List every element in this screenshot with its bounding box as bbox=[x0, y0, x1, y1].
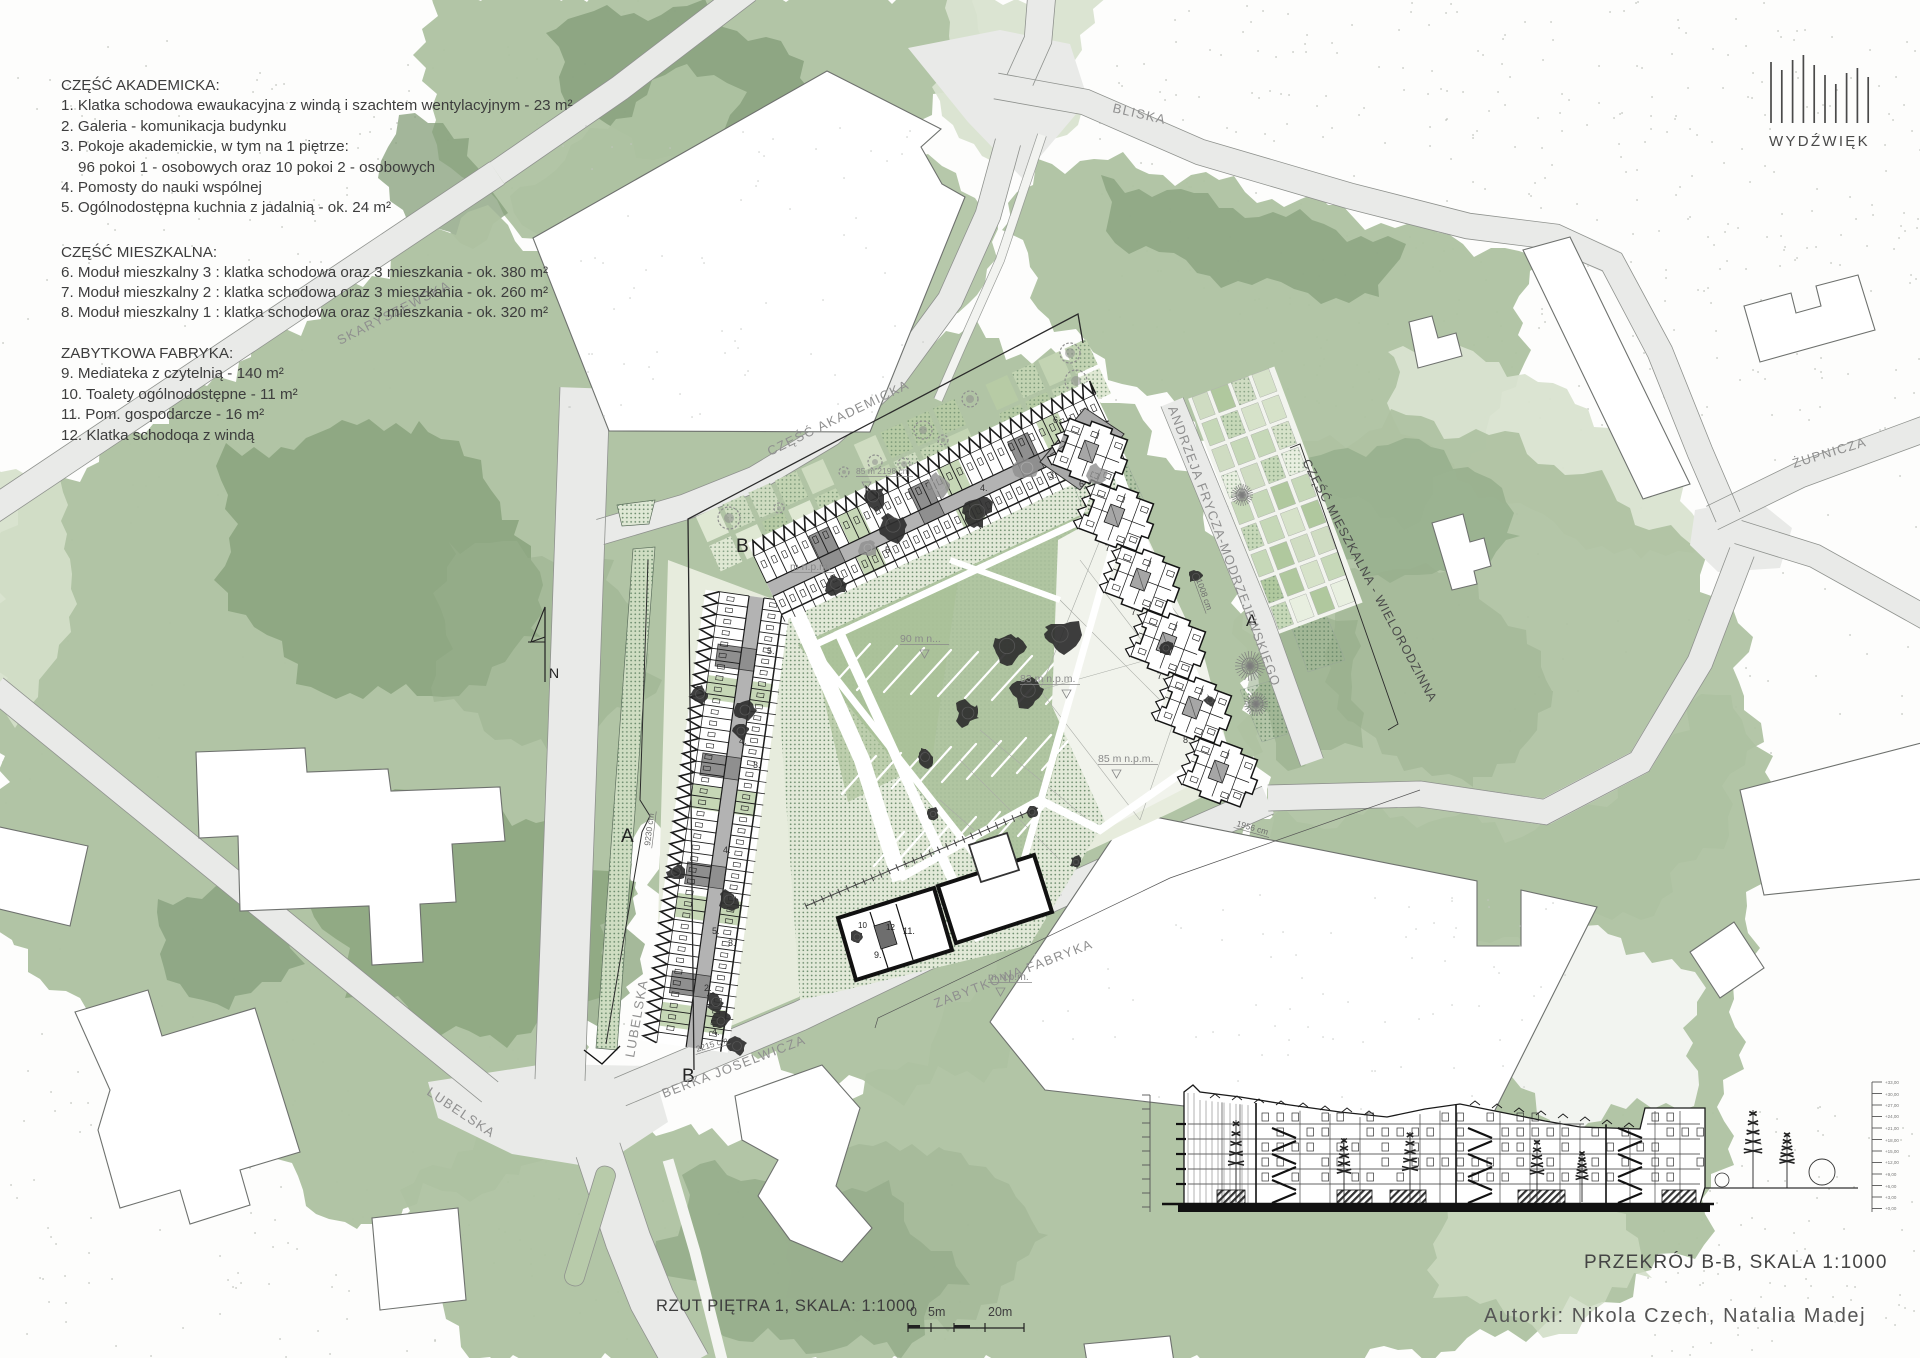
svg-text:3. Pokoje akademickie, w tym n: 3. Pokoje akademickie, w tym na 1 piętrz… bbox=[61, 138, 349, 155]
svg-text:4. Pomosty do nauki wspólnej: 4. Pomosty do nauki wspólnej bbox=[61, 179, 262, 196]
svg-text:11. Pom. gospodarcze - 16 m²: 11. Pom. gospodarcze - 16 m² bbox=[61, 406, 264, 423]
svg-text:+33,00: +33,00 bbox=[1885, 1080, 1899, 1085]
svg-text:7.: 7. bbox=[1131, 607, 1139, 617]
svg-text:B: B bbox=[736, 536, 749, 557]
svg-text:Autorki: Nikola Czech, Natalia: Autorki: Nikola Czech, Natalia Madej bbox=[1484, 1305, 1866, 1327]
svg-text:CZĘŚĆ MIESZKALNA:: CZĘŚĆ MIESZKALNA: bbox=[61, 243, 217, 261]
svg-text:11.: 11. bbox=[903, 926, 915, 936]
svg-text:+15,00: +15,00 bbox=[1885, 1149, 1899, 1154]
svg-text:83 m n.p.m.: 83 m n.p.m. bbox=[1020, 673, 1075, 685]
svg-text:+21,00: +21,00 bbox=[1885, 1126, 1899, 1131]
svg-text:N: N bbox=[549, 665, 559, 681]
svg-text:RZUT PIĘTRA 1, SKALA: 1:1000: RZUT PIĘTRA 1, SKALA: 1:1000 bbox=[656, 1297, 916, 1315]
svg-text:4.: 4. bbox=[712, 1027, 720, 1037]
svg-text:7.: 7. bbox=[1105, 543, 1113, 553]
svg-text:4.: 4. bbox=[723, 845, 731, 855]
svg-text:1. Klatka schodowa ewaukacyjna: 1. Klatka schodowa ewaukacyjna z windą i… bbox=[61, 97, 573, 114]
svg-text:10. Toalety ogólnodostępne - 1: 10. Toalety ogólnodostępne - 11 m² bbox=[61, 386, 298, 403]
svg-text:5.: 5. bbox=[885, 545, 893, 555]
svg-text:ZABYTKOWA FABRYKA:: ZABYTKOWA FABRYKA: bbox=[61, 345, 233, 362]
svg-text:2.: 2. bbox=[704, 983, 712, 993]
svg-text:0: 0 bbox=[910, 1305, 917, 1319]
svg-text:+12,00: +12,00 bbox=[1885, 1160, 1899, 1165]
svg-text:+0,00: +0,00 bbox=[1885, 1206, 1897, 1211]
svg-text:6.: 6. bbox=[1079, 479, 1087, 489]
svg-text:5. Ogólnodostępna kuchnia z ja: 5. Ogólnodostępna kuchnia z jadalnią - o… bbox=[61, 199, 391, 216]
svg-text:5m: 5m bbox=[928, 1305, 945, 1319]
svg-text:3.: 3. bbox=[728, 938, 736, 948]
svg-text:5.: 5. bbox=[712, 926, 720, 936]
svg-text:12: 12 bbox=[886, 923, 895, 932]
svg-text:20m: 20m bbox=[988, 1305, 1012, 1319]
svg-text:85 m n.p.m.: 85 m n.p.m. bbox=[1098, 753, 1153, 765]
svg-text:7. Moduł mieszkalny 2 : klatka: 7. Moduł mieszkalny 2 : klatka schodowa … bbox=[61, 284, 548, 301]
svg-text:12. Klatka schodoqa z windą: 12. Klatka schodoqa z windą bbox=[61, 427, 255, 444]
svg-text:2. Galeria - komunikacja budyn: 2. Galeria - komunikacja budynku bbox=[61, 118, 286, 135]
svg-text:10: 10 bbox=[858, 921, 867, 930]
svg-text:3.: 3. bbox=[753, 760, 761, 770]
svg-text:9.: 9. bbox=[874, 950, 882, 960]
svg-text:CZĘŚĆ AKADEMICKA:: CZĘŚĆ AKADEMICKA: bbox=[61, 76, 220, 94]
svg-text:4.: 4. bbox=[980, 483, 988, 493]
svg-text:9. Mediateka z czytelnią - 140: 9. Mediateka z czytelnią - 140 m² bbox=[61, 365, 284, 382]
svg-text:WYDŹWIĘK: WYDŹWIĘK bbox=[1769, 133, 1870, 150]
svg-text:8.: 8. bbox=[1183, 735, 1191, 745]
svg-text:A: A bbox=[621, 826, 634, 847]
svg-text:8. Moduł mieszkalny 1 : klatka: 8. Moduł mieszkalny 1 : klatka schodowa … bbox=[61, 304, 548, 321]
svg-text:90 m n...: 90 m n... bbox=[900, 633, 941, 645]
svg-text:+24,00: +24,00 bbox=[1885, 1114, 1899, 1119]
svg-text:+6,00: +6,00 bbox=[1885, 1184, 1897, 1189]
svg-text:96 pokoi 1 - osobowych oraz 10: 96 pokoi 1 - osobowych oraz 10 pokoi 2 -… bbox=[78, 159, 435, 176]
svg-text:+30,00: +30,00 bbox=[1885, 1092, 1899, 1097]
svg-text:+27,00: +27,00 bbox=[1885, 1103, 1899, 1108]
svg-text:PRZEKRÓJ B-B, SKALA 1:1000: PRZEKRÓJ B-B, SKALA 1:1000 bbox=[1584, 1251, 1888, 1273]
svg-text:5.: 5. bbox=[767, 646, 775, 656]
svg-text:7.: 7. bbox=[1157, 671, 1165, 681]
svg-text:6. Moduł mieszkalny 3 : klatka: 6. Moduł mieszkalny 3 : klatka schodowa … bbox=[61, 264, 548, 281]
svg-text:+18,00: +18,00 bbox=[1885, 1138, 1899, 1143]
svg-text:85 m 2198 cm: 85 m 2198 cm bbox=[856, 466, 910, 476]
svg-text:m n.p.m.: m n.p.m. bbox=[790, 561, 831, 573]
svg-text:+3,00: +3,00 bbox=[1885, 1195, 1897, 1200]
svg-text:6.: 6. bbox=[1053, 415, 1061, 425]
svg-text:+9,00: +9,00 bbox=[1885, 1172, 1897, 1177]
